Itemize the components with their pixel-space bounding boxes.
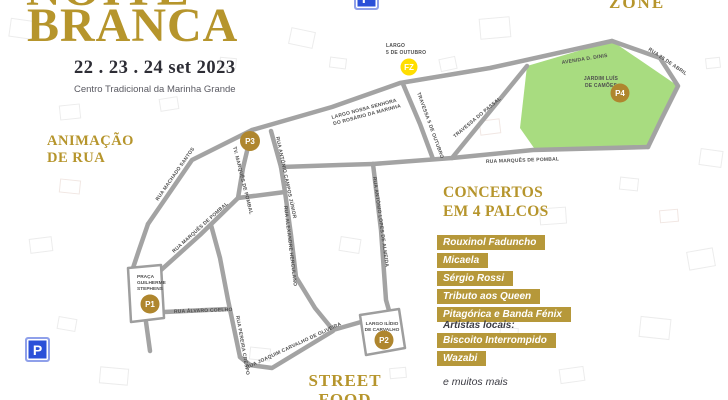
concert-act: Sérgio Rossi — [437, 271, 513, 286]
concert-act: Tributo aos Queen — [437, 289, 540, 304]
local-act: Biscoito Interrompido — [437, 333, 556, 348]
concertos-line2: EM 4 PALCOS — [443, 202, 549, 221]
street-label-marques-pombal-h: RUA MARQUÊS DE POMBAL — [486, 154, 559, 165]
e-muitos-mais-label: e muitos mais — [443, 376, 508, 388]
street-food-line2: FOOD — [298, 390, 392, 400]
praca-guilherme-stephens-outline — [128, 265, 164, 322]
place-label-largo-5-outubro-l2: 5 DE OUTUBRO — [386, 50, 426, 56]
concertos-line1: CONCERTOS — [443, 183, 549, 202]
road-marques-pombal-diagonal — [160, 198, 238, 271]
place-label-praca-l1: PRAÇA — [137, 274, 155, 280]
animacao-line2: DE RUA — [47, 150, 134, 167]
place-label-praca-l2: GUILHERME — [137, 280, 167, 286]
local-acts-list: Biscoito Interrompido Wazabi — [437, 333, 556, 369]
street-food-line1: STREET — [298, 371, 392, 390]
place-label-praca-l3: STEPHENS — [137, 286, 164, 292]
street-label-joaquim-carvalho: RUA JOAQUIM CARVALHO DE OLIVEIRA — [245, 321, 342, 371]
event-venue: Centro Tradicional da Marinha Grande — [74, 84, 236, 95]
title-branca: BRANCA — [27, 2, 238, 50]
artistas-locais-label: Artistas locais: — [443, 320, 515, 331]
animacao-de-rua-heading: ANIMAÇÃO DE RUA — [47, 133, 134, 167]
marker-p4-label: P4 — [615, 89, 625, 98]
local-act: Wazabi — [437, 351, 486, 366]
animacao-line1: ANIMAÇÃO — [47, 133, 134, 150]
parking-sign-letter: P — [362, 0, 371, 6]
place-label-largo-5-outubro-l1: LARGO — [386, 43, 405, 49]
concertos-heading: CONCERTOS EM 4 PALCOS — [443, 183, 549, 221]
street-label-alvaro-coelho: RUA ÁLVARO COELHO — [174, 306, 233, 315]
concert-act: Micaela — [437, 253, 488, 268]
concert-act: Rouxinol Faduncho — [437, 235, 545, 250]
marker-fz-label: FZ — [404, 63, 414, 72]
fun-zone-heading: ZONE — [609, 0, 665, 13]
road-travessa-passal — [452, 66, 527, 158]
poster-canvas: RUA MACHADO SANTOS TV. MARQUÊS DE POMBAL… — [0, 0, 728, 400]
parking-sign-letter: P — [33, 342, 42, 358]
road-largo-block-south — [281, 164, 373, 167]
parking-sign-icon: P — [25, 337, 50, 362]
street-label-marques-pombal-diag: RUA MARQUÊS DE POMBAL — [170, 200, 230, 255]
marker-p3: P3 — [240, 131, 260, 151]
marker-p2-label: P2 — [379, 336, 389, 345]
marker-p1-label: P1 — [145, 300, 155, 309]
marker-p1: P1 — [141, 295, 160, 314]
road-praca-stub — [146, 322, 150, 351]
street-label-machado-santos: RUA MACHADO SANTOS — [155, 146, 197, 202]
marker-p4: P4 — [611, 84, 630, 103]
street-label-tv-marques-pombal: TV. MARQUÊS DE POMBAL — [231, 146, 256, 216]
concert-acts-list: Rouxinol Faduncho Micaela Sérgio Rossi T… — [437, 235, 571, 325]
parking-sign-icon: P — [354, 0, 379, 10]
event-dates: 22 . 23 . 24 set 2023 — [74, 58, 236, 79]
street-food-heading: STREET FOOD — [298, 371, 392, 400]
marker-p3-label: P3 — [245, 137, 255, 146]
marker-p2: P2 — [375, 331, 394, 350]
place-label-jardim-l1: JARDIM LUÍS — [584, 74, 619, 82]
marker-fz: FZ — [401, 59, 418, 76]
road-to-praca — [133, 224, 148, 268]
